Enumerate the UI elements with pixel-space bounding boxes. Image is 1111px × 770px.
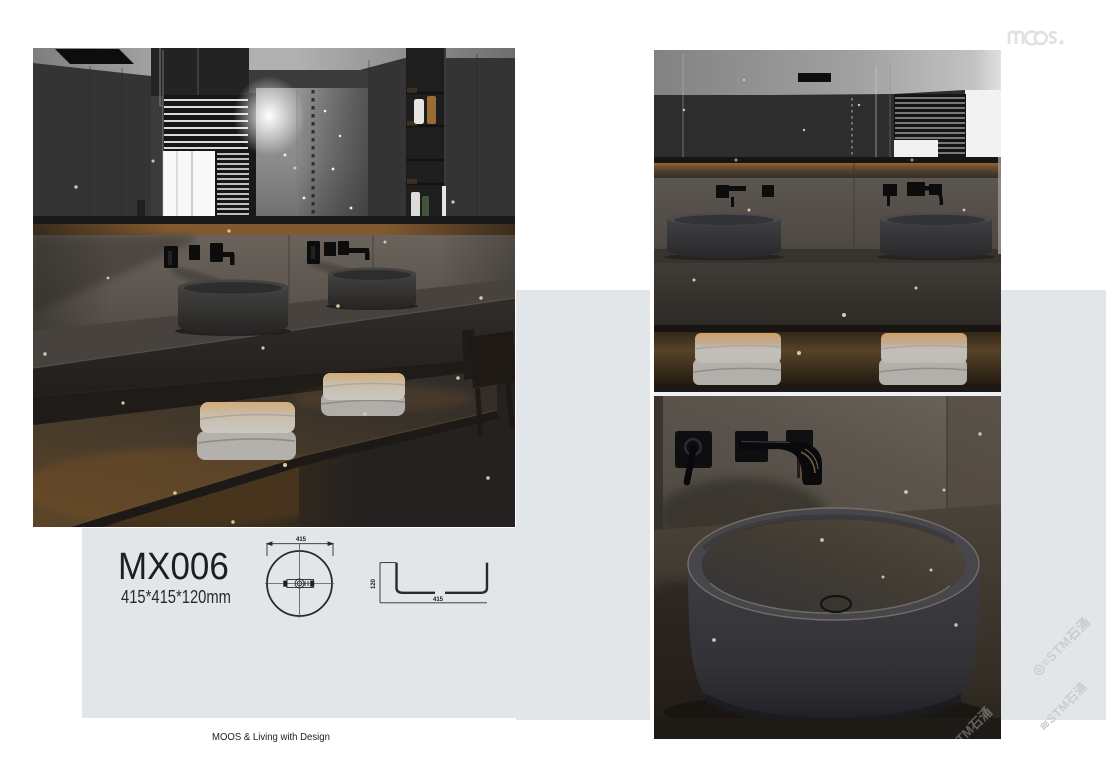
svg-text:415: 415 — [296, 537, 307, 543]
svg-text:415: 415 — [433, 597, 444, 603]
svg-text:120: 120 — [371, 578, 377, 589]
